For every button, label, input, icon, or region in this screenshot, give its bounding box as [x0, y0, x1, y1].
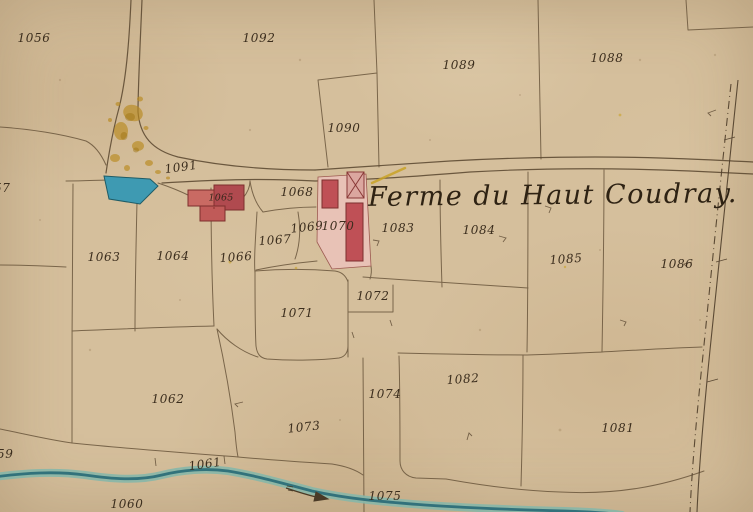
parcel-label: 1090 — [328, 121, 361, 135]
cadastral-map: Ferme du Haut Coudray. 1056 1092 1089 10… — [0, 0, 753, 512]
road-lines — [106, 0, 753, 183]
parcel-label: 1068 — [281, 185, 314, 199]
parcel-label: 1074 — [369, 387, 402, 401]
parcel-label: 1088 — [591, 51, 624, 65]
parcel-label: 1064 — [157, 249, 190, 263]
parcel-label: 1081 — [602, 421, 635, 435]
parcel-label: 1084 — [463, 223, 496, 237]
parcel-label: 1072 — [357, 289, 390, 303]
open-building-x-symbol — [347, 172, 364, 198]
pond — [104, 176, 158, 204]
edge-parcel-label: 57 — [0, 181, 10, 195]
parcel-label: 1060 — [111, 497, 144, 511]
parcel-label: 1085 — [549, 251, 583, 267]
stream — [0, 470, 622, 512]
parcel-label: 1082 — [446, 371, 480, 387]
farm-title: Ferme du Haut Coudray. — [368, 178, 738, 213]
ink-stains — [108, 97, 170, 180]
parcel-label: 1062 — [152, 392, 185, 406]
parcel-label: 1067 — [258, 232, 292, 248]
parcel-label: 1089 — [443, 58, 476, 72]
parcel-label: 1056 — [18, 31, 51, 45]
dashed-boundary-road — [690, 80, 738, 512]
parcel-label: 1071 — [281, 306, 314, 320]
parcel-label: 1066 — [219, 249, 253, 265]
parcel-label: 1092 — [243, 31, 276, 45]
building-label: 1065 — [209, 193, 234, 204]
parcel-label: 1083 — [382, 221, 415, 235]
parcel-label: 1070 — [322, 219, 355, 233]
parcel-label: 1086 — [661, 257, 694, 271]
edge-parcel-label: 59 — [0, 447, 13, 461]
parcel-label: 1063 — [88, 250, 121, 264]
parcel-label: 1075 — [369, 489, 402, 503]
